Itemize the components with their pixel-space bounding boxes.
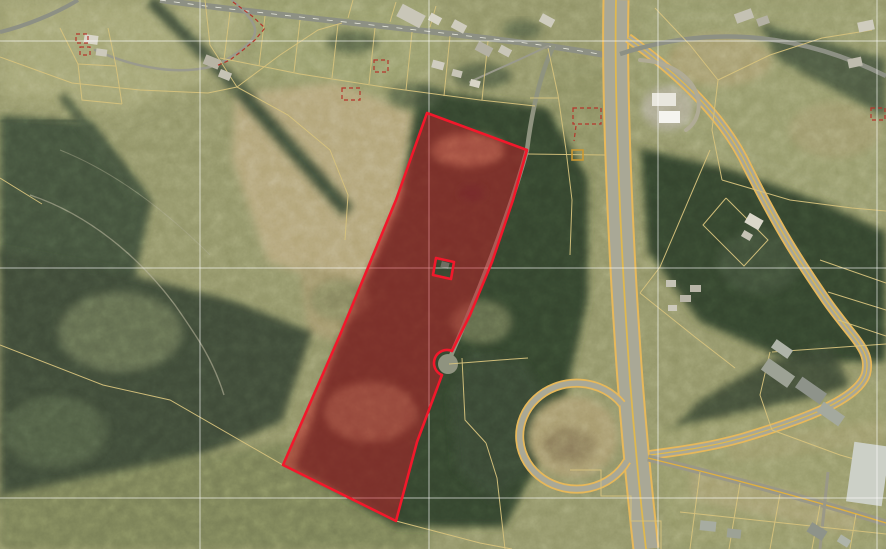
building <box>668 305 677 311</box>
terrain-patch <box>0 0 886 549</box>
building <box>690 285 701 292</box>
building <box>700 520 717 532</box>
map-viewport[interactable] <box>0 0 886 549</box>
building <box>680 295 691 302</box>
terrain-layer <box>0 0 886 549</box>
building <box>659 111 680 123</box>
map-canvas[interactable] <box>0 0 886 549</box>
building <box>727 528 742 538</box>
building <box>652 93 676 106</box>
building <box>666 280 676 287</box>
